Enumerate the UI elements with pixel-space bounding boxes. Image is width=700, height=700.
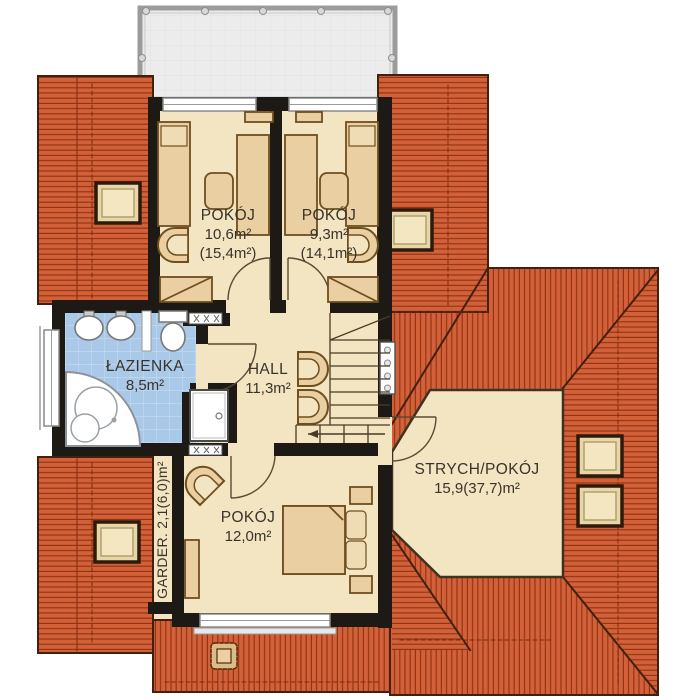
floor-plan-drawing [0,0,700,700]
knee-wall-vent [189,445,222,455]
room-label-lazienka: ŁAZIENKA 8,5m² [83,357,207,395]
room-area: 8,5m² [83,376,207,395]
room-area-total: (15,4m²) [163,244,293,263]
room-area: 9,3m² [275,225,383,244]
chair [320,173,348,209]
room-label-pokoj-top-left: POKÓJ 10,6m² (15,4m²) [163,206,293,263]
skylight-icon [388,210,432,250]
skylight-icon [95,522,139,562]
dresser [185,540,199,598]
room-label-pokoj-bottom: POKÓJ 12,0m² [196,508,300,546]
knee-wall-vent [189,313,222,324]
room-name: POKÓJ [196,508,300,527]
floor-plan: POKÓJ 10,6m² (15,4m²) POKÓJ 9,3m² (14,1m… [0,0,700,700]
skylight-icon [578,486,622,526]
room-label-strych: STRYCH/POKÓJ 15,9(37,7)m² [388,460,566,498]
balcony [139,8,396,103]
chair [205,173,233,209]
closet [328,277,378,302]
shelf [296,112,322,122]
partition [142,311,151,351]
room-name: GARDER. [154,533,170,599]
bedroom-window [194,614,336,634]
room-name: POKÓJ [275,206,383,225]
balcony-door [289,98,377,111]
room-area: 11,3m² [222,379,314,398]
toilet [159,311,187,351]
room-name: ŁAZIENKA [83,357,207,376]
room-area: 12,0m² [196,527,300,546]
room-name: STRYCH/POKÓJ [388,460,566,479]
shelf [245,112,273,122]
stairwell-window [380,342,395,394]
room-name: POKÓJ [163,206,293,225]
bathroom-window [40,326,59,430]
roof-right-top [378,75,488,312]
room-name: HALL [222,360,314,379]
balcony-door [163,98,256,111]
skylight-icon [578,436,622,476]
skylight-icon [96,183,140,223]
chimney [211,643,237,669]
nightstand [350,576,372,593]
room-label-garderoba: GARDER. 2,1(6,0)m² [154,455,172,605]
room-area: 10,6m² [163,225,293,244]
nightstand [350,487,372,504]
room-area: 2,1(6,0)m² [154,461,170,529]
room-label-pokoj-top-right: POKÓJ 9,3m² (14,1m²) [275,206,383,263]
room-area-total: (14,1m²) [275,244,383,263]
closet [160,277,212,302]
room-label-hall: HALL 11,3m² [222,360,314,398]
room-area: 15,9(37,7)m² [388,479,566,498]
